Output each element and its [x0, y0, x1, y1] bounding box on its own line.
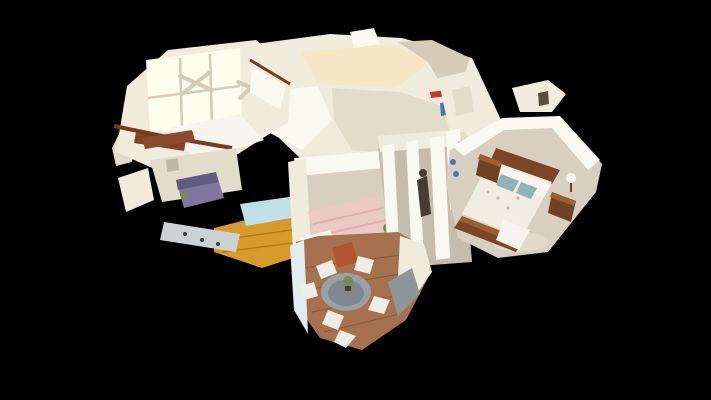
doorway-dark — [538, 91, 549, 106]
counter-item — [183, 232, 187, 236]
dot — [506, 206, 509, 209]
closet-item — [453, 171, 459, 177]
dollhouse-model — [0, 0, 711, 400]
plant-pot — [345, 286, 351, 291]
house-plant — [180, 191, 188, 199]
figure-head — [419, 169, 427, 177]
counter-item — [216, 242, 220, 246]
small-window — [166, 158, 179, 172]
lamp-shade — [566, 173, 576, 183]
counter-item — [200, 238, 204, 242]
dot — [496, 196, 499, 199]
closet-item — [450, 159, 456, 165]
dot — [516, 196, 519, 199]
viewer-canvas[interactable] — [0, 0, 711, 400]
table-plant — [343, 276, 353, 286]
dot — [486, 190, 489, 193]
